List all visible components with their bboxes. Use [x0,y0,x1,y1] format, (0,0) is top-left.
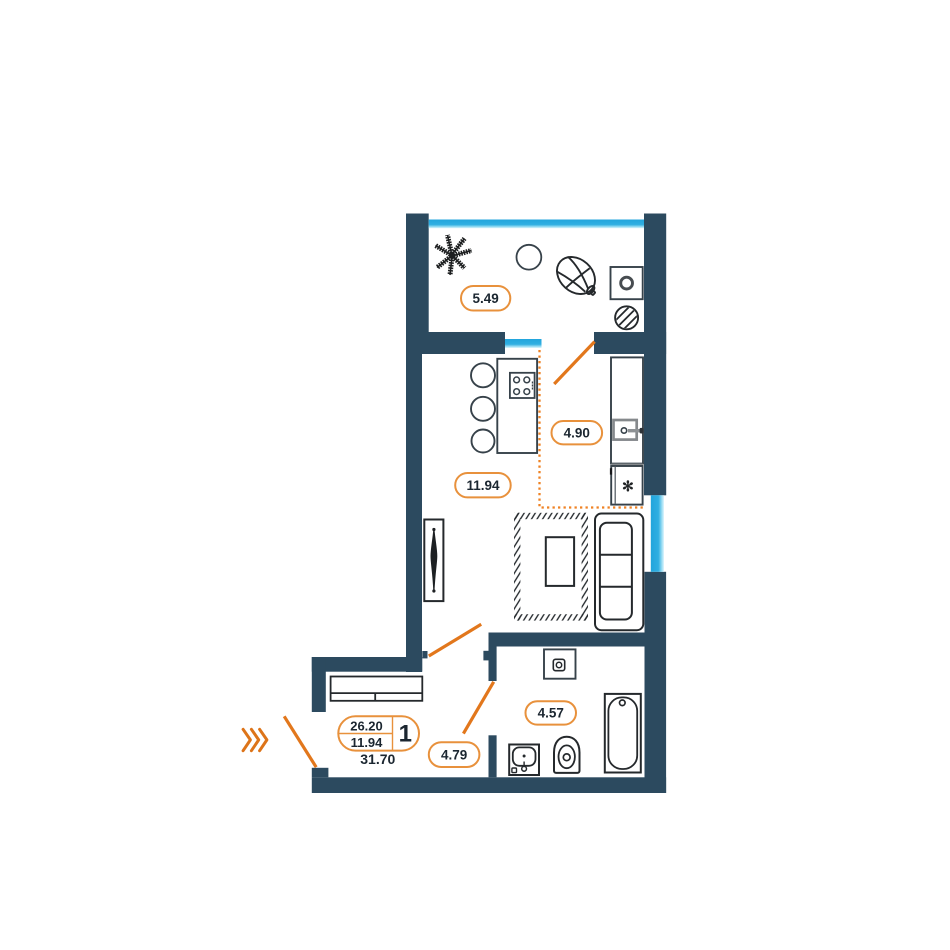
svg-text:31.70: 31.70 [360,751,395,767]
svg-text:5.49: 5.49 [472,291,498,306]
svg-text:4.90: 4.90 [564,425,590,440]
svg-text:4.57: 4.57 [538,706,564,721]
svg-text:26.20: 26.20 [350,719,383,734]
svg-text:11.94: 11.94 [351,735,384,750]
svg-text:11.94: 11.94 [466,478,500,493]
svg-text:4.79: 4.79 [441,747,467,762]
svg-text:1: 1 [399,721,412,748]
